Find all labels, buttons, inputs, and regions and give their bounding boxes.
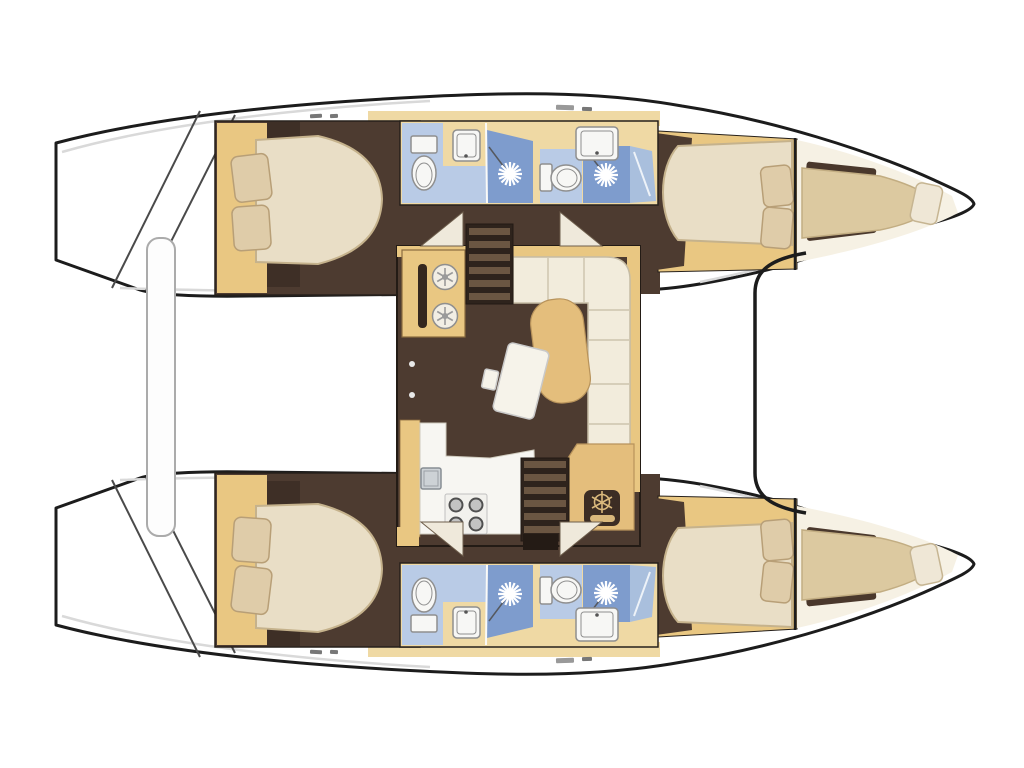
chart-table [559, 444, 634, 530]
footstool [481, 369, 499, 390]
bridgedeck-front-line [755, 253, 806, 513]
cooktop-unit [402, 250, 465, 337]
salon [397, 246, 640, 546]
helm-wheel-icon [584, 490, 620, 526]
aft-platform [147, 238, 175, 536]
door-hinge-dot [409, 392, 415, 398]
companionway-stairs-port [466, 224, 513, 304]
door-hinge-dot [409, 361, 415, 367]
galley-sink [421, 468, 441, 489]
catamaran-floorplan [0, 0, 1024, 768]
floorplan-image [0, 0, 1024, 768]
